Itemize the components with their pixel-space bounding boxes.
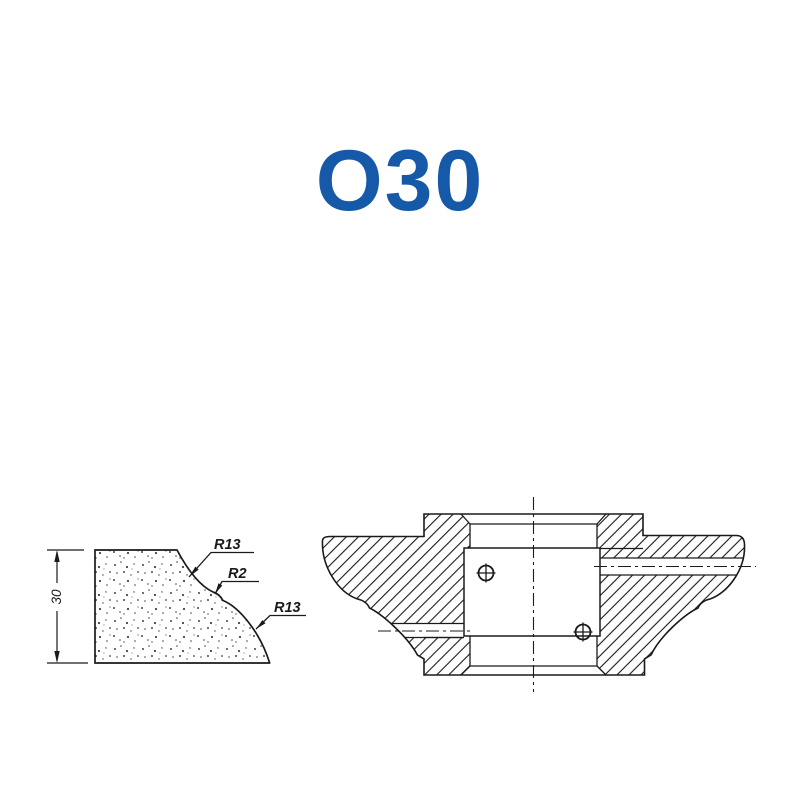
dim-arrow-up (54, 550, 59, 562)
profile-view: 30 R13 R2 R13 (47, 537, 306, 663)
technical-drawing: 30 R13 R2 R13 (0, 0, 800, 800)
leader-r13-bottom: R13 (256, 600, 306, 629)
leader-r2: R2 (215, 566, 259, 594)
label-r13-top: R13 (214, 537, 241, 553)
label-r13-bottom: R13 (274, 600, 301, 616)
catalog-page: O30 (0, 0, 800, 800)
height-dimension (47, 550, 88, 663)
dim-arrow-down (54, 651, 59, 663)
height-dimension-label: 30 (49, 589, 64, 605)
label-r2: R2 (228, 566, 247, 582)
section-view (322, 497, 756, 692)
